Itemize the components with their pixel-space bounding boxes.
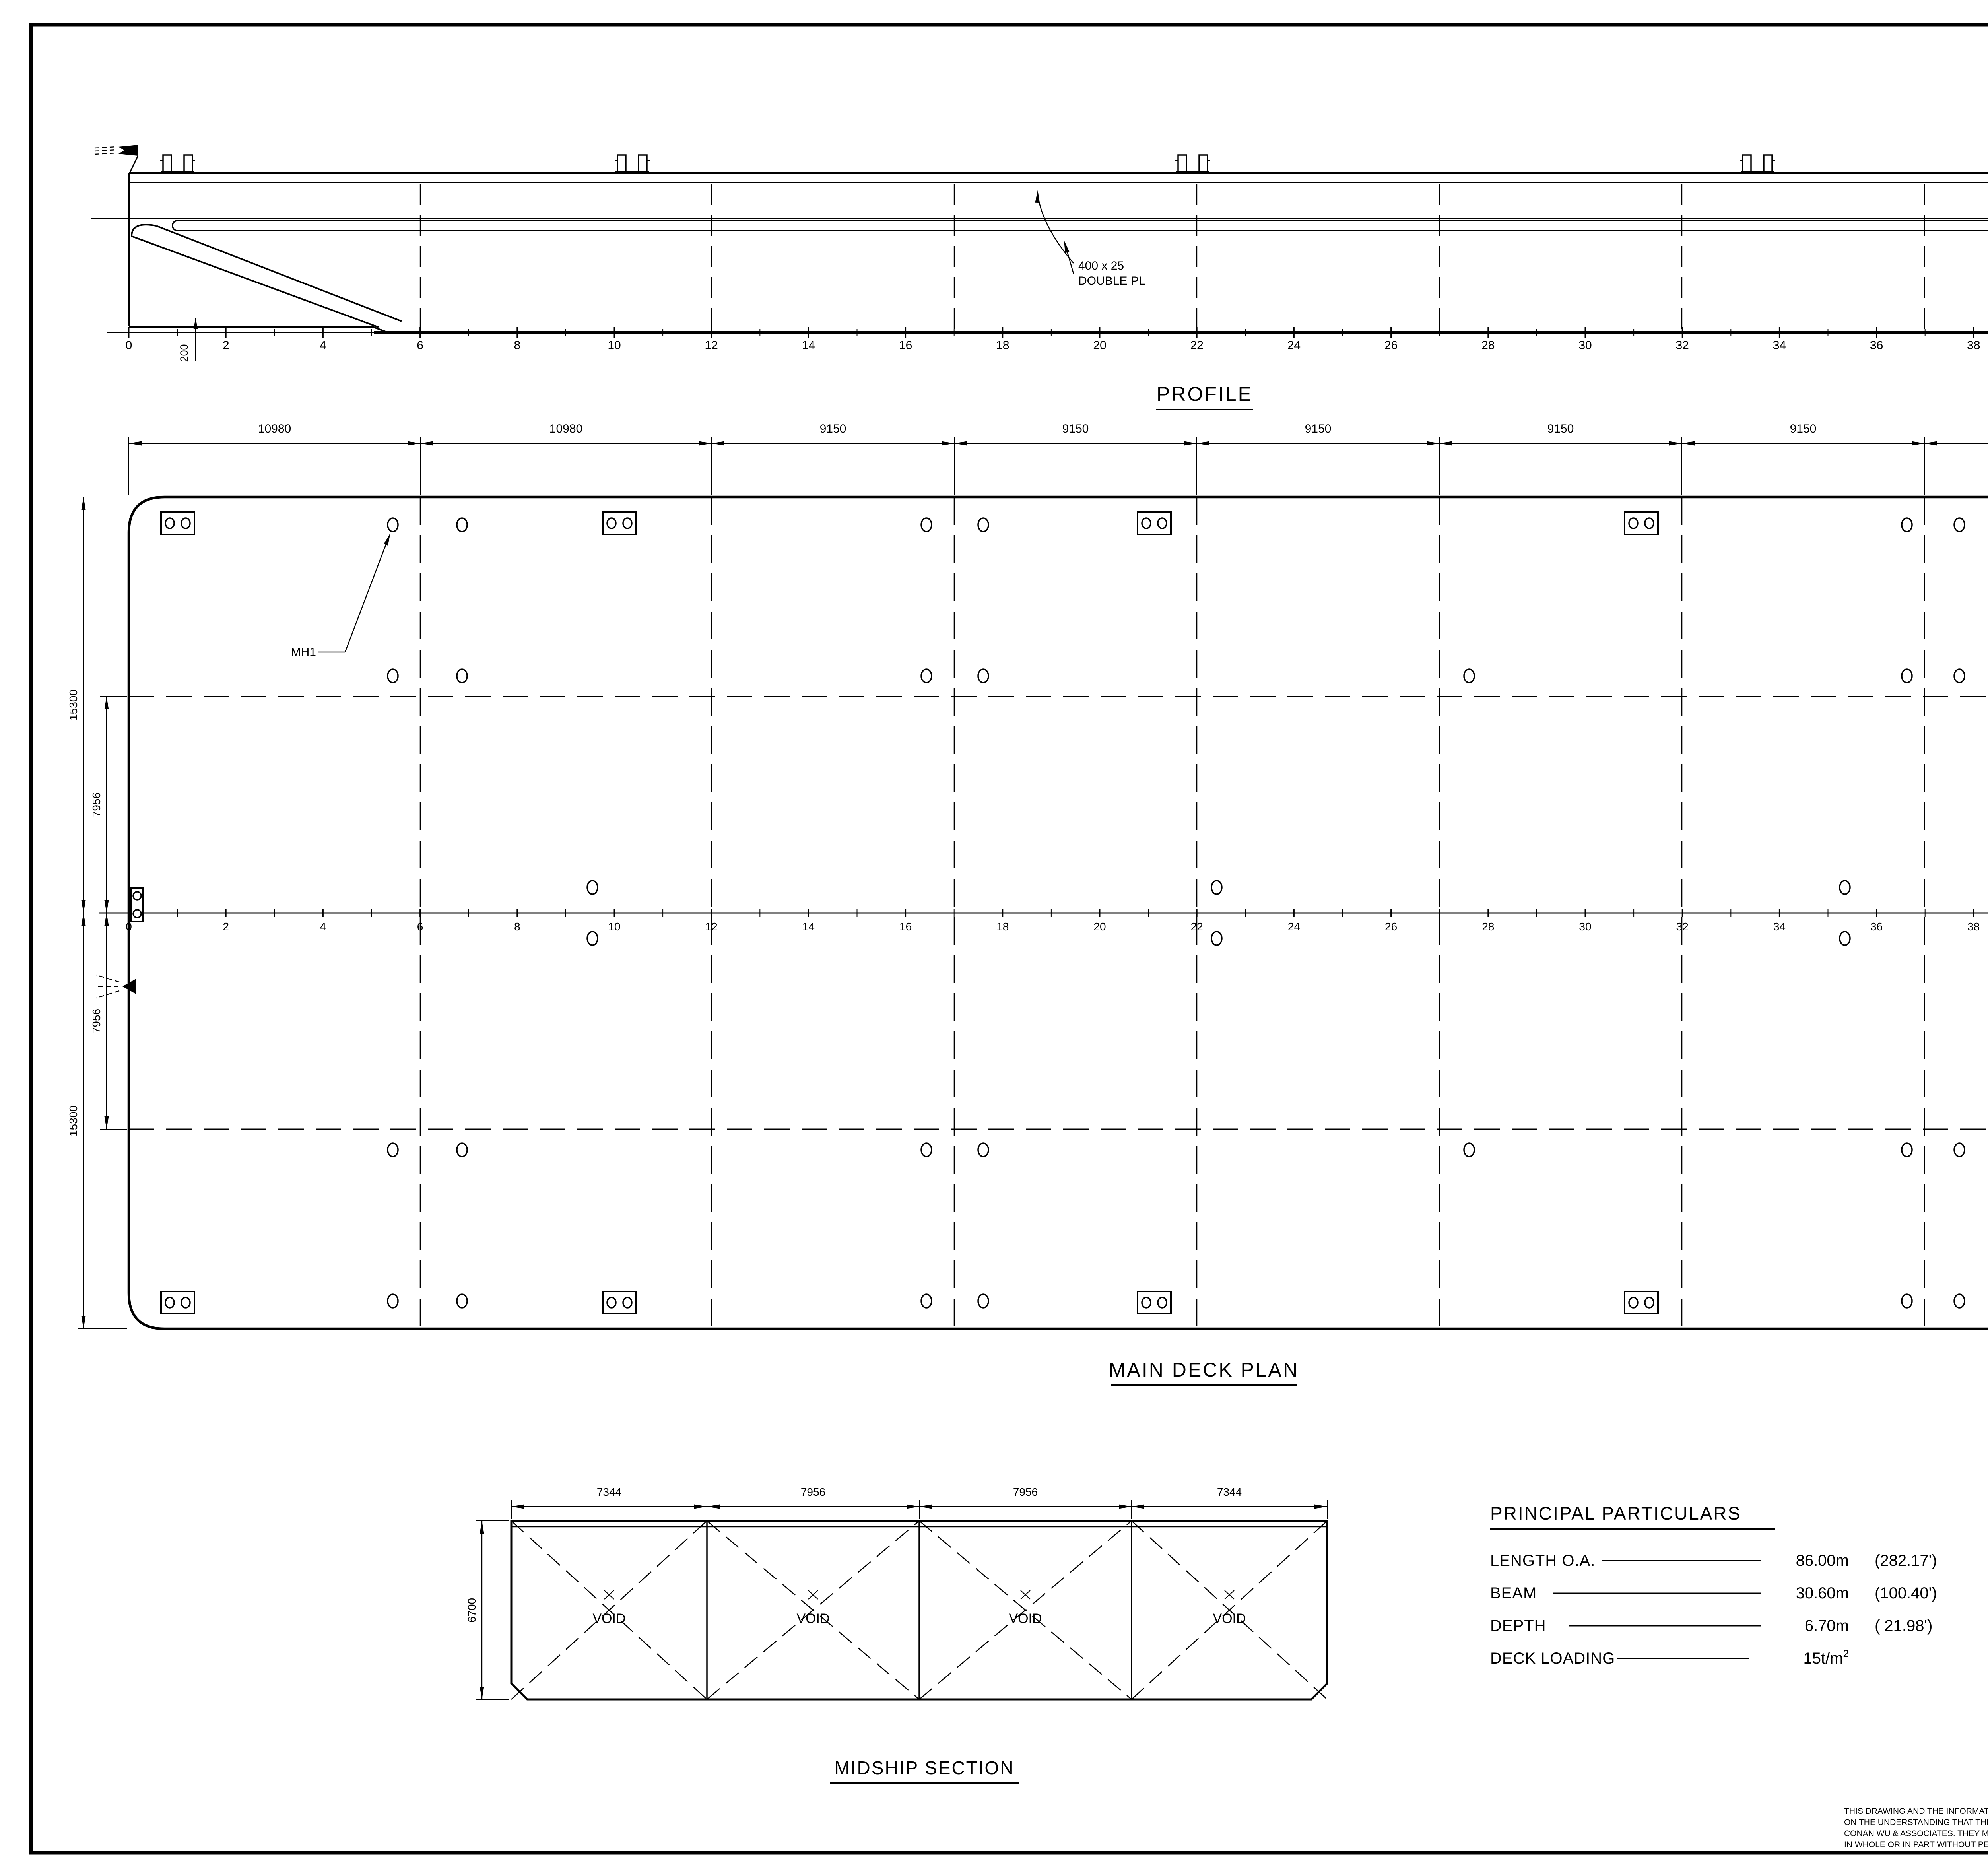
manhole — [1902, 518, 1912, 532]
arrowhead — [480, 1687, 484, 1699]
frame-label: 16 — [899, 920, 912, 933]
deck-double-bitt — [1625, 1291, 1658, 1314]
stern-rake-bar-upper — [156, 226, 402, 321]
midship-top-dimensions: 7344795679567344 — [511, 1486, 1327, 1519]
flag-staff — [130, 156, 138, 173]
manhole — [587, 881, 598, 894]
arrowhead — [1197, 441, 1209, 446]
frame-label: 38 — [1967, 920, 1980, 933]
particular-label: LENGTH O.A. — [1490, 1552, 1595, 1569]
arrowhead — [105, 913, 109, 926]
arrowhead — [105, 1116, 109, 1129]
profile-frame-scale: 0246810121416182022242628303234363840424… — [126, 327, 1988, 352]
frame-label: 16 — [899, 339, 912, 352]
void-label: VOID — [592, 1611, 625, 1626]
arrowhead — [105, 697, 109, 709]
manhole — [978, 518, 988, 532]
manhole — [921, 1143, 932, 1157]
deck-double-bitt — [1625, 512, 1658, 534]
arrowhead — [1064, 240, 1070, 253]
manhole — [1464, 1143, 1474, 1157]
manhole — [1211, 881, 1222, 894]
disclaimer-line: CONAN WU & ASSOCIATES. THEY MUST NOT BE … — [1844, 1829, 1988, 1838]
arrowhead — [480, 1521, 484, 1534]
manhole — [978, 1143, 988, 1157]
arrowhead — [1035, 190, 1039, 203]
deck-double-bitt — [161, 512, 194, 534]
arrowhead — [82, 497, 86, 510]
manhole — [1902, 1294, 1912, 1308]
frame-label: 2 — [223, 339, 229, 352]
frame-label: 8 — [514, 920, 520, 933]
frame-label: 0 — [126, 339, 132, 352]
frame-label: 18 — [996, 339, 1009, 352]
leader-line — [345, 537, 389, 652]
flag-hatch — [95, 150, 116, 151]
double-plate-label-line1: 400 x 25 — [1078, 259, 1124, 272]
frame-label: 14 — [802, 339, 815, 352]
particulars-title: PRINCIPAL PARTICULARS — [1490, 1503, 1741, 1524]
arrowhead — [954, 441, 967, 446]
flag-hatch — [95, 153, 116, 154]
frame-label: 4 — [320, 920, 326, 933]
particular-label: DEPTH — [1490, 1617, 1546, 1635]
frame-label: 26 — [1384, 339, 1398, 352]
frame-label: 12 — [705, 339, 718, 352]
arrowhead — [1924, 441, 1937, 446]
frame-label: 2 — [223, 920, 229, 933]
particular-imperial: (282.17') — [1875, 1552, 1937, 1569]
disclaimer: THIS DRAWING AND THE INFORMATION CONTAIN… — [1844, 1807, 1988, 1849]
frame-label: 6 — [417, 339, 423, 352]
frame-label: 30 — [1578, 339, 1592, 352]
manhole — [1902, 669, 1912, 683]
dimension-label: 15300 — [67, 1105, 80, 1136]
manhole — [1954, 1294, 1965, 1308]
arrowhead — [919, 1505, 932, 1509]
deck-frame-scale: 0246810121416182022242628303234363840424… — [126, 909, 1988, 933]
disclaimer-line: ON THE UNDERSTANDING THAT THEY ARE THE E… — [1844, 1818, 1988, 1827]
arrowhead — [712, 441, 724, 446]
arrowhead — [82, 900, 86, 913]
void-label: VOID — [1009, 1611, 1042, 1626]
deck-double-bitt — [1138, 1291, 1171, 1314]
manhole — [1954, 669, 1965, 683]
manhole — [978, 1294, 988, 1308]
arrowhead — [408, 441, 420, 446]
manhole — [457, 1294, 467, 1308]
double-plate-label-line2: DOUBLE PL — [1078, 274, 1145, 287]
arrowhead — [82, 913, 86, 926]
arrowhead — [384, 533, 390, 546]
arrowhead — [1427, 441, 1439, 446]
arrowhead — [420, 441, 433, 446]
double-plate-band — [173, 221, 1988, 231]
frame-label: 20 — [1093, 920, 1106, 933]
arrowhead — [1132, 1505, 1144, 1509]
particular-value: 30.60m — [1796, 1584, 1849, 1602]
particular-value: 86.00m — [1796, 1552, 1849, 1569]
frame-label: 38 — [1967, 339, 1980, 352]
deck-double-bitt — [1138, 512, 1171, 534]
manhole — [457, 1143, 467, 1157]
manhole — [388, 518, 398, 532]
stern-centerline-bitt — [131, 888, 143, 922]
dimension-label: 7956 — [1013, 1486, 1038, 1498]
void-label: VOID — [1213, 1611, 1246, 1626]
disclaimer-line: THIS DRAWING AND THE INFORMATION CONTAIN… — [1844, 1807, 1988, 1816]
frame-label: 28 — [1482, 920, 1494, 933]
deck-left-dimensions: 153001530079567956 — [67, 497, 127, 1329]
dimension-label: 10980 — [549, 422, 582, 435]
midship-section: MIDSHIP SECTION 6700 VOIDVOIDVOIDVOID734… — [466, 1486, 1327, 1783]
manhole — [1902, 1143, 1912, 1157]
deck-double-bitt — [161, 1291, 194, 1314]
manhole — [1211, 932, 1222, 945]
arrowhead — [129, 441, 142, 446]
frame-label: 32 — [1676, 339, 1689, 352]
deck-double-bitt — [603, 512, 636, 534]
manhole — [1464, 669, 1474, 683]
main-deck-plan: MAIN DECK PLAN MH1 MH36 0246810121416182… — [67, 422, 1988, 1399]
arrowhead — [1669, 441, 1682, 446]
manhole — [388, 1143, 398, 1157]
profile-double-bitt — [1740, 155, 1775, 171]
frame-label: 10 — [608, 920, 620, 933]
disclaimer-line: IN WHOLE OR IN PART WITHOUT PERMISSION I… — [1844, 1840, 1988, 1849]
frame-label: 8 — [514, 339, 520, 352]
manhole — [978, 669, 988, 683]
dimension-label: 9150 — [1062, 422, 1089, 435]
arrowhead — [1912, 441, 1924, 446]
arrowhead — [1439, 441, 1452, 446]
frame-label: 26 — [1385, 920, 1397, 933]
deck-double-bitt — [603, 1291, 636, 1314]
arrowhead — [105, 900, 109, 913]
dimension-label: 9150 — [820, 422, 846, 435]
manhole — [587, 932, 598, 945]
arrowhead — [1682, 441, 1695, 446]
frame-label: 18 — [996, 920, 1009, 933]
particular-label: BEAM — [1490, 1584, 1537, 1602]
particular-value: 15t/m2 — [1803, 1648, 1849, 1667]
frame-label: 28 — [1481, 339, 1495, 352]
midship-height-dim: 6700 — [466, 1598, 478, 1623]
manhole — [457, 669, 467, 683]
profile-title: PROFILE — [1157, 383, 1253, 405]
manhole — [1840, 881, 1850, 894]
stern-symbol-ray — [96, 991, 119, 998]
dimension-label: 7956 — [90, 1009, 103, 1033]
dimension-label: 7956 — [801, 1486, 825, 1498]
arrowhead — [907, 1505, 919, 1509]
flag-hatch — [95, 147, 116, 148]
frame-label: 36 — [1870, 339, 1883, 352]
manhole — [921, 518, 932, 532]
dimension-label: 9150 — [1547, 422, 1574, 435]
frame-label: 30 — [1579, 920, 1591, 933]
stern-rake-bar-lower — [132, 225, 379, 327]
particular-imperial: ( 21.98') — [1875, 1617, 1933, 1635]
profile-double-bitt — [160, 155, 195, 171]
arrowhead — [82, 1316, 86, 1329]
manhole — [1954, 1143, 1965, 1157]
deck-top-dimensions: 109801098091509150915091509150109807310 — [129, 422, 1988, 495]
arrowhead — [194, 318, 198, 329]
frame-label: 36 — [1870, 920, 1883, 933]
arrowhead — [511, 1505, 524, 1509]
stern-symbol-ray — [96, 975, 119, 982]
frame-label: 34 — [1773, 920, 1786, 933]
manholes — [388, 518, 1988, 1315]
dimension-label: 7344 — [1217, 1486, 1242, 1498]
manhole — [388, 669, 398, 683]
stern-flag — [118, 145, 138, 156]
drawing-border — [31, 25, 1988, 1853]
frame-label: 10 — [608, 339, 621, 352]
frame-label: 34 — [1773, 339, 1786, 352]
particular-imperial: (100.40') — [1875, 1584, 1937, 1602]
arrowhead — [707, 1505, 720, 1509]
manhole — [1954, 518, 1965, 532]
frame-label: 14 — [802, 920, 815, 933]
leader-line — [1038, 193, 1074, 263]
profile-double-bitt — [1175, 155, 1210, 171]
frame-label: 22 — [1190, 339, 1204, 352]
stern-skeg-dim: 200 — [178, 344, 190, 362]
arrowhead — [699, 441, 712, 446]
dimension-label: 10980 — [258, 422, 291, 435]
principal-particulars: PRINCIPAL PARTICULARS LENGTH O.A.86.00m(… — [1490, 1503, 1937, 1667]
void-label: VOID — [796, 1611, 829, 1626]
profile-double-bitt — [615, 155, 650, 171]
manhole — [921, 669, 932, 683]
manhole — [457, 518, 467, 532]
manhole — [388, 1294, 398, 1308]
main-deck-plan-title: MAIN DECK PLAN — [1109, 1359, 1299, 1381]
frame-label: 24 — [1287, 339, 1301, 352]
midship-section-title: MIDSHIP SECTION — [834, 1757, 1014, 1778]
dimension-label: 7956 — [90, 792, 103, 817]
arrowhead — [1184, 441, 1197, 446]
frame-label: 24 — [1288, 920, 1300, 933]
arrowhead — [942, 441, 954, 446]
dimension-label: 9150 — [1305, 422, 1332, 435]
frame-label: 20 — [1093, 339, 1106, 352]
dimension-label: 15300 — [67, 689, 80, 720]
particular-label: DECK LOADING — [1490, 1650, 1615, 1667]
manhole — [1840, 932, 1850, 945]
dimension-label: 9150 — [1790, 422, 1817, 435]
arrowhead — [694, 1505, 707, 1509]
manhole — [921, 1294, 932, 1308]
arrowhead — [1314, 1505, 1327, 1509]
dimension-label: 7344 — [597, 1486, 621, 1498]
manhole-label-mh1: MH1 — [291, 646, 316, 659]
arrowhead — [1119, 1505, 1132, 1509]
frame-label: 4 — [320, 339, 326, 352]
profile-view: PROFILE 400 x 25 DOUBLE PL 200 024681012… — [91, 103, 1988, 410]
particular-value: 6.70m — [1805, 1617, 1849, 1635]
